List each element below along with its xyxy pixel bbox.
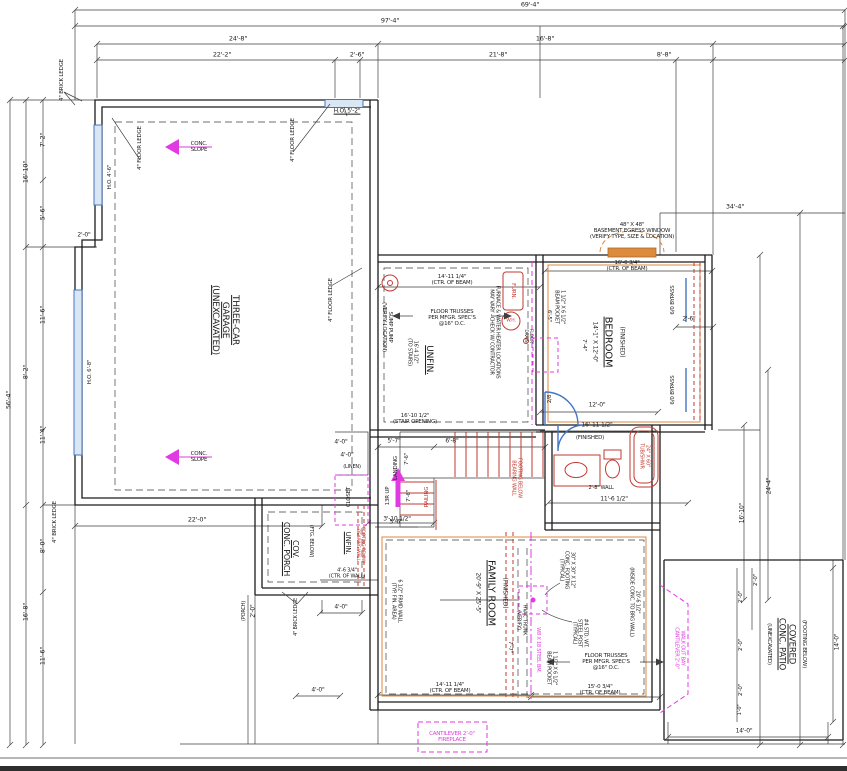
note-brick-ledge-porch: 4" BRICK LEDGE	[294, 598, 300, 636]
dim-patio-2-0-c: 2'-0"	[738, 684, 744, 696]
dim-bedroom-size: 14'-1" X 12'-0"	[591, 322, 598, 363]
label-bypass-1: 6/0 BYPASS	[670, 285, 676, 314]
note-conc-footing: 30" X 30" X 12" CONC. FOOTING (TYPICAL)	[558, 551, 575, 589]
dim-5-6-porch: 5'-6"	[389, 520, 402, 527]
note-ho-4-6: H.O. 4'-6"	[107, 165, 113, 189]
label-landing: LANDING	[393, 456, 399, 480]
dim-4-6-wall: 4'-6 3/4" (CTR. OF WALL)	[329, 568, 365, 579]
dim-7-4: 7'-4"	[581, 339, 587, 351]
note-walkout: WALK OUT BAY CANTILEVER 2'-0"	[673, 627, 684, 668]
label-railing: RAILING	[424, 487, 430, 508]
dim-right-34-4: 34'-4"	[726, 203, 744, 210]
note-2-8-wall: 2'-8" WALL	[588, 486, 613, 492]
note-floor-ledge-2: 4" FLOOR LEDGE	[290, 118, 296, 162]
dim-left-11-4: 11'-4"	[39, 426, 46, 444]
dim-beam-15-0: 15'-0 3/4" (CTR. OF BEAM)	[580, 684, 621, 696]
note-brick-ledge-bl: 4" BRICK LEDGE	[52, 501, 58, 543]
label-patio-footing: (FOOTING BELOW)	[801, 620, 807, 668]
label-linen: (LINEN)	[343, 465, 360, 471]
dim-top-8-8: 8'-8"	[657, 51, 671, 58]
label-closet: CLOSET	[346, 487, 352, 507]
room-patio: COVERED CONC. PATIO	[776, 618, 795, 670]
dim-top-16-8: 16'-8"	[536, 35, 554, 42]
dim-2-6-closet: 2'-6"	[682, 317, 695, 324]
dim-left-8-2: 8'-2"	[22, 365, 29, 379]
dim-6-5: 6'-5"	[546, 310, 552, 322]
label-bedroom-finished: (FINISHED)	[618, 327, 625, 358]
dim-patio-14-0-r: 14'-0"	[835, 634, 842, 651]
dim-patio-14-0-b: 14'-0"	[736, 729, 753, 736]
dim-beam-16-0: 16'-0 3/4" (CTR. OF BEAM)	[607, 260, 648, 272]
dim-family-size: 20'-9" X 25'-5"	[474, 573, 481, 614]
note-ho-5-2: H.O. 5'-2"	[334, 109, 361, 116]
dim-2-0-porch: 2'-0"	[251, 604, 258, 617]
dim-top-2-6: 2'-6"	[350, 51, 364, 58]
dim-top-22-2: 22'-2"	[213, 51, 231, 58]
dim-left-11-6b: 11'-6"	[39, 647, 46, 665]
note-fireplace: CANTILEVER 2'-0" FIREPLACE	[429, 731, 475, 743]
note-egress: 48" X 48" BASEMENT EGRESS WINDOW (VERIFY…	[590, 222, 674, 240]
dim-6-8: 6'-8"	[445, 439, 458, 446]
note-conc-slope-1: CONC. SLOPE	[191, 141, 208, 153]
label-wh: W.H.	[506, 318, 515, 323]
label-tub: 24" X 60" TUB/SHWR	[638, 443, 649, 469]
note-frmd-wall: 6 1/2" FRMD WALL (TYP. FIN. AREA)	[390, 579, 401, 622]
label-bypass-2: 6/0 BYPASS	[670, 375, 676, 404]
label-steel-beam: W8 X 18 STEEL BM.	[534, 627, 540, 673]
label-hvac: HVAC TRUNK (VERIFY)	[515, 605, 526, 635]
dim-left-8-0: 8'-0"	[39, 539, 46, 553]
note-floor-ledge-3: 4" FLOOR LEDGE	[328, 278, 334, 322]
dim-4-0-porch: 4'-0"	[334, 605, 347, 612]
note-beam-pocket-2: 1 1/2" X 6 1/2" BEAM POCKET	[545, 651, 556, 685]
dim-left-7-2: 7'-2"	[39, 133, 46, 147]
note-beam-pocket-1: 1 1/2" X 6 1/2" BEAM POCKET	[553, 290, 564, 324]
dim-4-0-bot: 4'-0"	[311, 688, 324, 695]
dim-right-24-4: 24'-4"	[767, 478, 774, 495]
dim-patio-2-0-a: 2'-0"	[738, 591, 744, 603]
note-ho-6-8: H.O. 6'-8"	[87, 360, 93, 384]
dim-7-7: 7'-7"	[507, 641, 513, 653]
label-door-2-8: 2/8	[547, 395, 553, 403]
note-brick-ledge-tl: 4" BRICK LEDGE	[59, 59, 65, 101]
room-garage: THREE-CAR GARAGE (UNEXCAVATED)	[210, 285, 240, 355]
dim-patio-2-0-b: 2'-0"	[738, 639, 744, 651]
dim-left-16-10: 16'-10"	[22, 161, 29, 183]
dim-top-21-8: 21'-8"	[489, 51, 507, 58]
note-conc-slope-2: CONC. SLOPE	[191, 451, 208, 463]
dim-left-56-4: 56'-4"	[5, 391, 12, 409]
label-finished-hall: (FINISHED)	[576, 435, 604, 441]
room-unfin-1: UNFIN.	[424, 345, 434, 375]
label-floor-drain: FLOOR DRAIN	[523, 329, 533, 343]
dim-to-stairs: 16'-4 1/2" (TO STAIRS)	[406, 338, 417, 366]
dim-right-16-10: 16'-10"	[740, 503, 747, 523]
dim-11-6-half: 11'-6 1/2"	[600, 497, 628, 504]
note-floor-ledge-1: 4" FLOOR LEDGE	[137, 126, 143, 170]
dim-16-11: 16'-11 1/2"	[581, 423, 612, 430]
dim-12-0: 12'-0"	[589, 403, 606, 410]
dim-left-2-0: 2'-0"	[77, 233, 90, 240]
label-family-finished: (FINISHED)	[501, 578, 508, 609]
dim-patio-2-0-d: 2'-0"	[753, 574, 759, 586]
dim-5-7: 5'-7"	[387, 439, 400, 446]
room-porch: COV. CONC. PORCH	[281, 522, 299, 576]
note-steel-post: #4 STD. WT. STEEL POST (TYPICAL)	[571, 618, 588, 647]
dim-top-97-4: 97'-4"	[381, 17, 399, 24]
floor-plan-canvas: 69'-4"97'-4"24'-8"16'-8"22'-2"2'-6"21'-8…	[0, 0, 847, 771]
dim-7-6-b: 7'-6"	[406, 490, 412, 502]
dim-4-0-a: 4'-0"	[334, 440, 347, 447]
label-furn: FURN.	[510, 283, 516, 299]
note-footing-bearing-2: FOOTING BELOW BEARING WALL	[355, 527, 365, 563]
note-footing-bearing-1: FOOTING BELOW BEARING WALL	[510, 458, 521, 498]
label-13r-up: 13R UP	[385, 487, 391, 506]
dim-4-0-b: 4'-0"	[340, 453, 353, 460]
room-family: FAMILY ROOM	[485, 560, 496, 626]
labels-layer: 69'-4"97'-4"24'-8"16'-8"22'-2"2'-6"21'-8…	[0, 0, 847, 771]
dim-patio-1-0: 1'-0"	[738, 705, 744, 716]
dim-garage-22-0: 22'-0"	[188, 516, 206, 523]
note-sump: SUMP PUMP (VERIFY LOCATION)	[381, 302, 393, 352]
dim-20-6: 20'-6 1/2" (INSIDE CONC. TO BRG WALL)	[628, 567, 639, 637]
dim-7-6-a: 7'-6"	[404, 453, 410, 465]
label-patio-unexc: (UNEXCAVATED)	[766, 623, 772, 665]
dim-top-overall: 69'-4"	[521, 1, 539, 8]
room-bedroom: BEDROOM	[602, 317, 613, 368]
dim-left-16-8: 16'-8"	[22, 603, 29, 621]
label-porch-dim: (PORCH)	[242, 601, 248, 621]
dim-beam-14-11-top: 14'-11 1/4" (CTR. OF BEAM)	[432, 274, 473, 286]
room-unfin-2: UNFIN.	[343, 532, 351, 555]
dim-beam-14-11-bot: 14'-11 1/4" (CTR. OF BEAM)	[430, 682, 471, 694]
label-porch-ftg: (FTG. BELOW)	[307, 525, 313, 557]
dim-stair-opening: 16'-10 1/2" (STAIR OPENING)	[393, 413, 437, 425]
note-trusses-1: FLOOR TRUSSES PER MFGR. SPEC'S @16" O.C.	[428, 309, 476, 327]
note-furnace-wh: FURNACE & WATER HEATER LOCATIONS MAY VAR…	[488, 285, 499, 378]
dim-left-5-6: 5'-6"	[39, 206, 46, 220]
note-trusses-2: FLOOR TRUSSES PER MFGR. SPEC'S @16" O.C.	[582, 653, 630, 671]
dim-top-24-8: 24'-8"	[229, 35, 247, 42]
dim-left-11-6: 11'-6"	[39, 306, 46, 324]
